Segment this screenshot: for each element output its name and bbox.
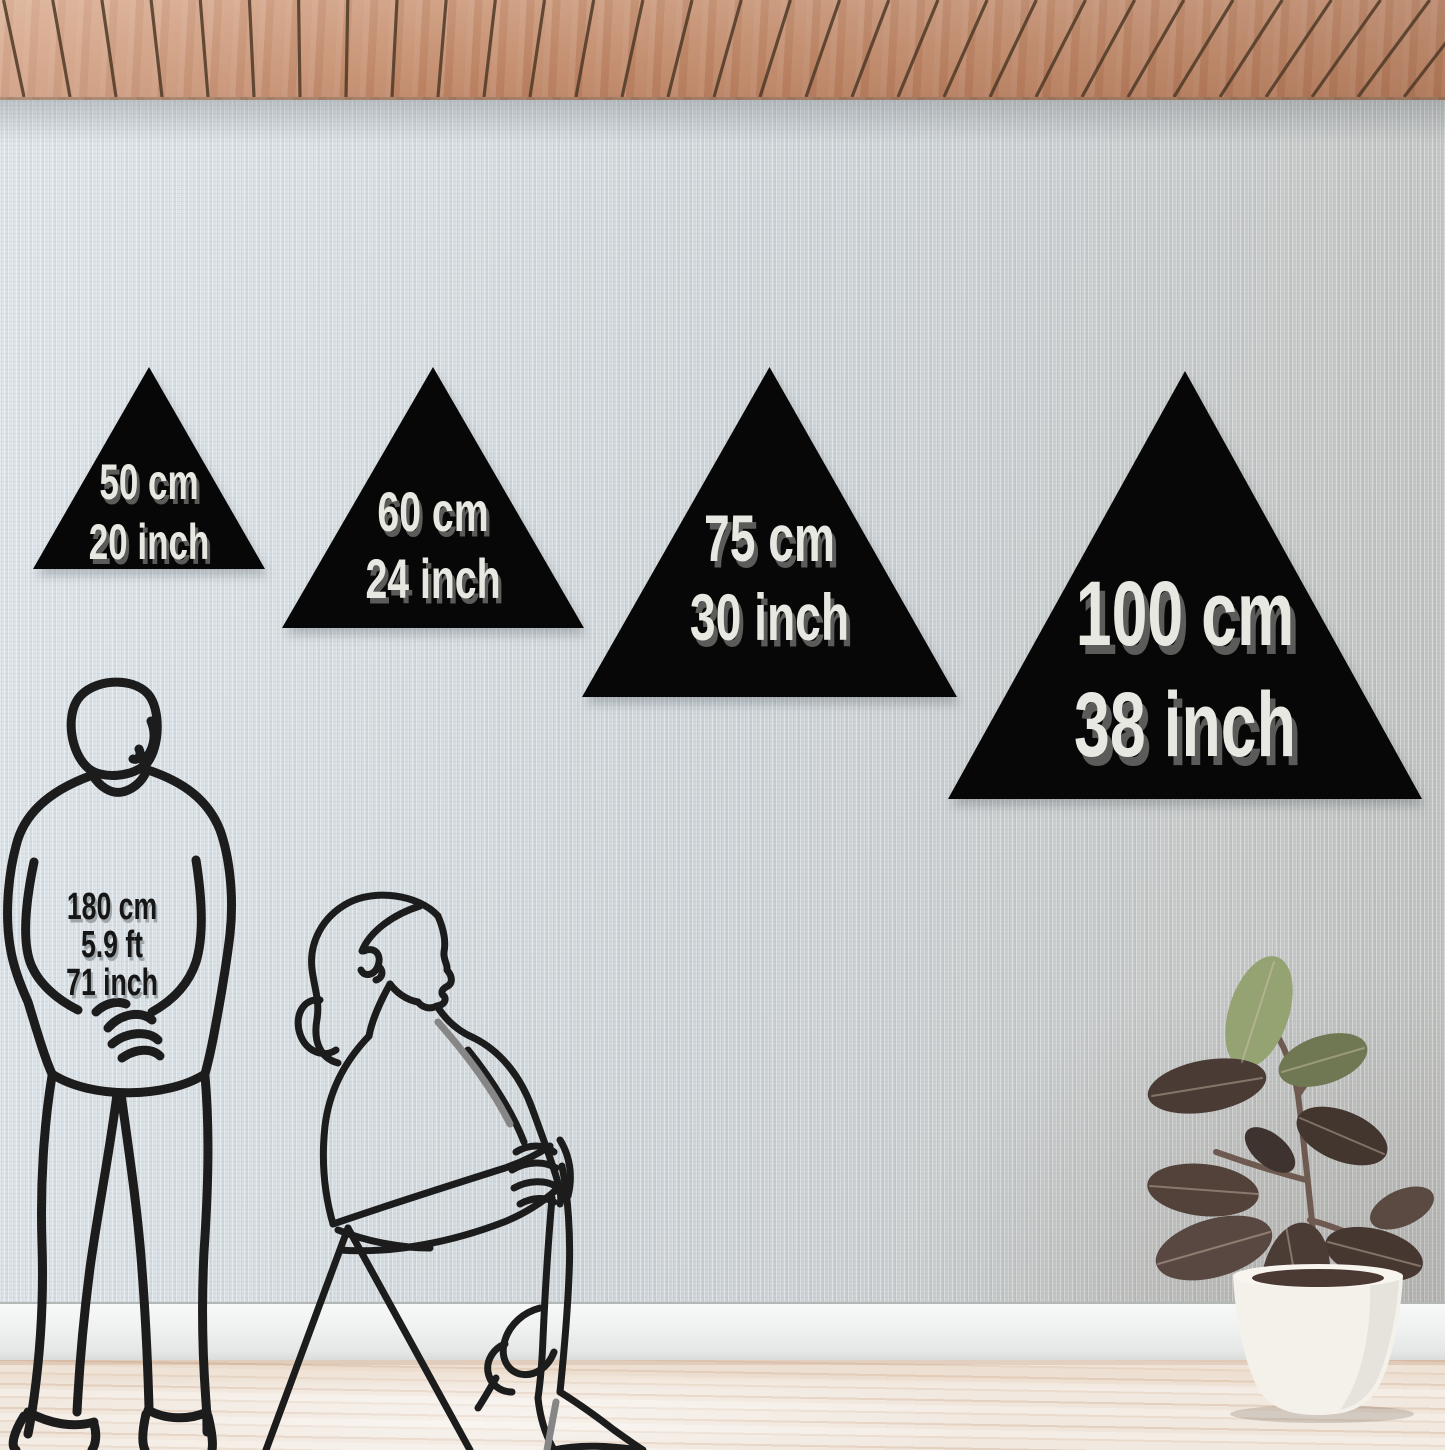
person-height-cm: 180 cm — [42, 888, 182, 926]
scene: 50 cm 20 inch 60 cm 24 inch 75 cm 30 inc… — [0, 0, 1445, 1450]
person-height-inch: 71 inch — [42, 964, 182, 1002]
figures-overlay — [0, 0, 1445, 1450]
plant — [1143, 948, 1440, 1423]
woman-figure — [266, 895, 643, 1450]
pot-soil — [1252, 1269, 1384, 1287]
person-height-label: 180 cm 5.9 ft 71 inch — [42, 888, 182, 1002]
person-height-ft: 5.9 ft — [42, 926, 182, 964]
man-figure — [8, 682, 232, 1450]
